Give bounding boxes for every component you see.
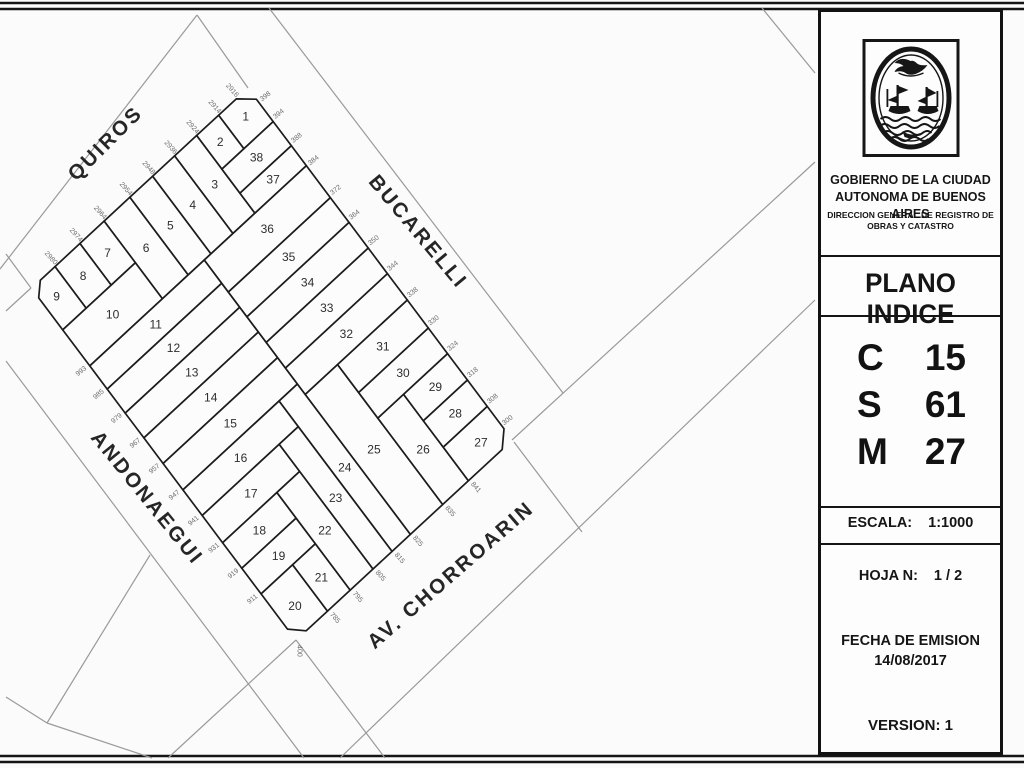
parcel-number-9: 9: [53, 290, 60, 304]
edge-dimension-number: 330: [427, 314, 441, 327]
document-title: PLANO INDICE: [825, 268, 997, 330]
parcel-number-37: 37: [266, 172, 280, 186]
parcel-number-5: 5: [167, 219, 174, 233]
edge-dimension-number: 2914: [207, 99, 223, 115]
street-edge-line: [6, 288, 31, 311]
parcel-number-12: 12: [167, 341, 181, 355]
edge-dimension-number: 931: [208, 542, 222, 555]
street-edge-line: [47, 555, 150, 723]
parcel-number-19: 19: [272, 549, 286, 563]
parcel-number-20: 20: [288, 599, 302, 613]
edge-dimension-number: 979: [110, 412, 124, 425]
edge-dimension-number: 384: [307, 154, 321, 167]
parcel-number-7: 7: [104, 246, 111, 260]
street-edge-line: [512, 162, 815, 440]
code-seccion: S 61: [857, 381, 966, 428]
edge-dimension-number: 2936: [163, 140, 179, 156]
edge-dimension-number: 324: [446, 340, 460, 353]
parcel-number-36: 36: [261, 222, 275, 236]
edge-dimension-number: 911: [246, 593, 259, 606]
code-value: 61: [925, 381, 966, 428]
edge-dimension-number: 957: [148, 463, 162, 476]
scale-value: 1:1000: [928, 515, 973, 531]
coat-of-arms-buenos-aires-icon: [862, 39, 959, 162]
edge-dimension-number: 967: [129, 437, 143, 450]
parcel-number-15: 15: [224, 417, 238, 431]
edge-dimension-number: 2924: [185, 119, 201, 135]
edge-dimension-number: 941: [187, 515, 201, 528]
parcel-number-11: 11: [149, 318, 162, 332]
parcel-number-22: 22: [318, 524, 332, 538]
edge-dimension-number: 835: [443, 505, 456, 518]
edge-dimension-number: 993: [75, 365, 89, 378]
title-panel: GOBIERNO DE LA CIUDAD AUTONOMA DE BUENOS…: [818, 9, 1003, 755]
code-letter: C: [857, 334, 884, 381]
parcel-number-21: 21: [315, 570, 329, 584]
edge-dimension-number: 919: [227, 567, 241, 580]
parcel-number-35: 35: [282, 250, 296, 264]
parcel-number-17: 17: [244, 486, 258, 500]
edge-dimension-number: 815: [393, 552, 406, 565]
street-edge-line: [6, 254, 31, 288]
edge-dimension-number: 308: [486, 393, 500, 406]
parcel-number-6: 6: [143, 241, 150, 255]
parcel-number-10: 10: [106, 307, 120, 321]
sheet-label: HOJA N:: [859, 568, 918, 584]
edge-dimension-number: 2948: [141, 160, 157, 176]
edge-dimension-number: 300: [501, 414, 515, 427]
edge-dimension-number: 394: [272, 108, 286, 121]
issue-date-label: FECHA DE EMISION: [821, 633, 1000, 649]
parcel-number-24: 24: [338, 461, 352, 475]
edge-dimension-number: 947: [168, 489, 182, 502]
edge-dimension-number: 2964: [92, 205, 108, 221]
code-circunscripcion: C 15: [857, 334, 966, 381]
street-edge-line: [762, 8, 815, 73]
parcel-number-34: 34: [301, 275, 315, 289]
parcel-number-2: 2: [217, 135, 224, 149]
parcel-number-31: 31: [376, 339, 390, 353]
org-dept-line1: DIRECCION GENERAL DE REGISTRO DE: [821, 210, 1000, 221]
street-edge-line: [6, 697, 47, 723]
plano-indice-page: { "page": {"bg":"#fbfbfb","ink":"#1c1c1c…: [0, 0, 1024, 768]
edge-dimension-number: 398: [259, 90, 273, 103]
parcel-number-32: 32: [340, 327, 354, 341]
csm-codes: C 15 S 61 M 27: [857, 334, 966, 475]
panel-separator: [821, 543, 1000, 545]
parcel-number-28: 28: [449, 407, 463, 421]
parcel-number-38: 38: [250, 150, 264, 164]
edge-dimension-number: 795: [351, 590, 364, 603]
version-label: VERSION: 1: [821, 717, 1000, 734]
panel-separator: [821, 506, 1000, 508]
issue-date-value: 14/08/2017: [821, 653, 1000, 669]
code-letter: M: [857, 428, 888, 475]
parcel-number-16: 16: [234, 451, 248, 465]
edge-dimension-number: 985: [92, 388, 106, 401]
street-edge-line: [168, 640, 296, 758]
sheet-value: 1 / 2: [934, 568, 962, 584]
parcel-number-18: 18: [253, 523, 267, 537]
edge-dimension-number: 2954: [118, 181, 134, 197]
edge-dimension-number: 2980: [43, 250, 59, 266]
code-manzana: M 27: [857, 428, 966, 475]
panel-separator: [821, 255, 1000, 257]
edge-dimension-number: 805: [374, 569, 387, 582]
parcel-number-1: 1: [242, 110, 249, 124]
street-edge-line: [197, 15, 248, 88]
parcel-number-27: 27: [474, 436, 488, 450]
code-letter: S: [857, 381, 882, 428]
parcel-number-29: 29: [429, 380, 443, 394]
parcel-number-8: 8: [80, 269, 87, 283]
edge-dimension-number: 841: [469, 481, 482, 494]
edge-dimension-number: 825: [411, 535, 424, 548]
edge-dimension-number: 2916: [224, 83, 240, 99]
edge-dimension-number: 338: [406, 286, 420, 299]
org-dept-line2: OBRAS Y CATASTRO: [821, 221, 1000, 232]
panel-separator: [821, 315, 1000, 317]
edge-dimension-number: 318: [466, 366, 480, 379]
sheet-number-row: HOJA N:1 / 2: [821, 568, 1000, 584]
edge-dimension-number: 350: [367, 234, 381, 247]
parcel-number-23: 23: [329, 491, 343, 505]
street-edge-line: [296, 640, 385, 758]
parcel-number-3: 3: [211, 178, 218, 192]
edge-dimension-number: 344: [386, 260, 400, 273]
parcel-number-25: 25: [367, 442, 381, 456]
org-name-line1: GOBIERNO DE LA CIUDAD: [821, 172, 1000, 189]
street-label-quiros: QUIROS: [63, 101, 147, 185]
street-edge-line: [47, 723, 152, 758]
parcel-number-30: 30: [396, 366, 410, 380]
scale-label: ESCALA:: [848, 515, 912, 531]
parcel-number-13: 13: [185, 366, 199, 380]
edge-dimension-number: 400: [296, 645, 303, 657]
edge-dimension-number: 388: [290, 132, 304, 145]
edge-dimension-number: 785: [328, 611, 341, 624]
code-value: 15: [925, 334, 966, 381]
edge-dimension-number: 364: [348, 209, 362, 222]
scale-row: ESCALA:1:1000: [821, 515, 1000, 531]
parcel-number-4: 4: [189, 198, 196, 212]
edge-dimension-number: 2974: [68, 227, 84, 243]
parcel-number-14: 14: [204, 391, 218, 405]
parcel-number-33: 33: [320, 301, 334, 315]
edge-dimension-number: 372: [329, 184, 343, 197]
code-value: 27: [925, 428, 966, 475]
parcel-number-26: 26: [416, 442, 430, 456]
